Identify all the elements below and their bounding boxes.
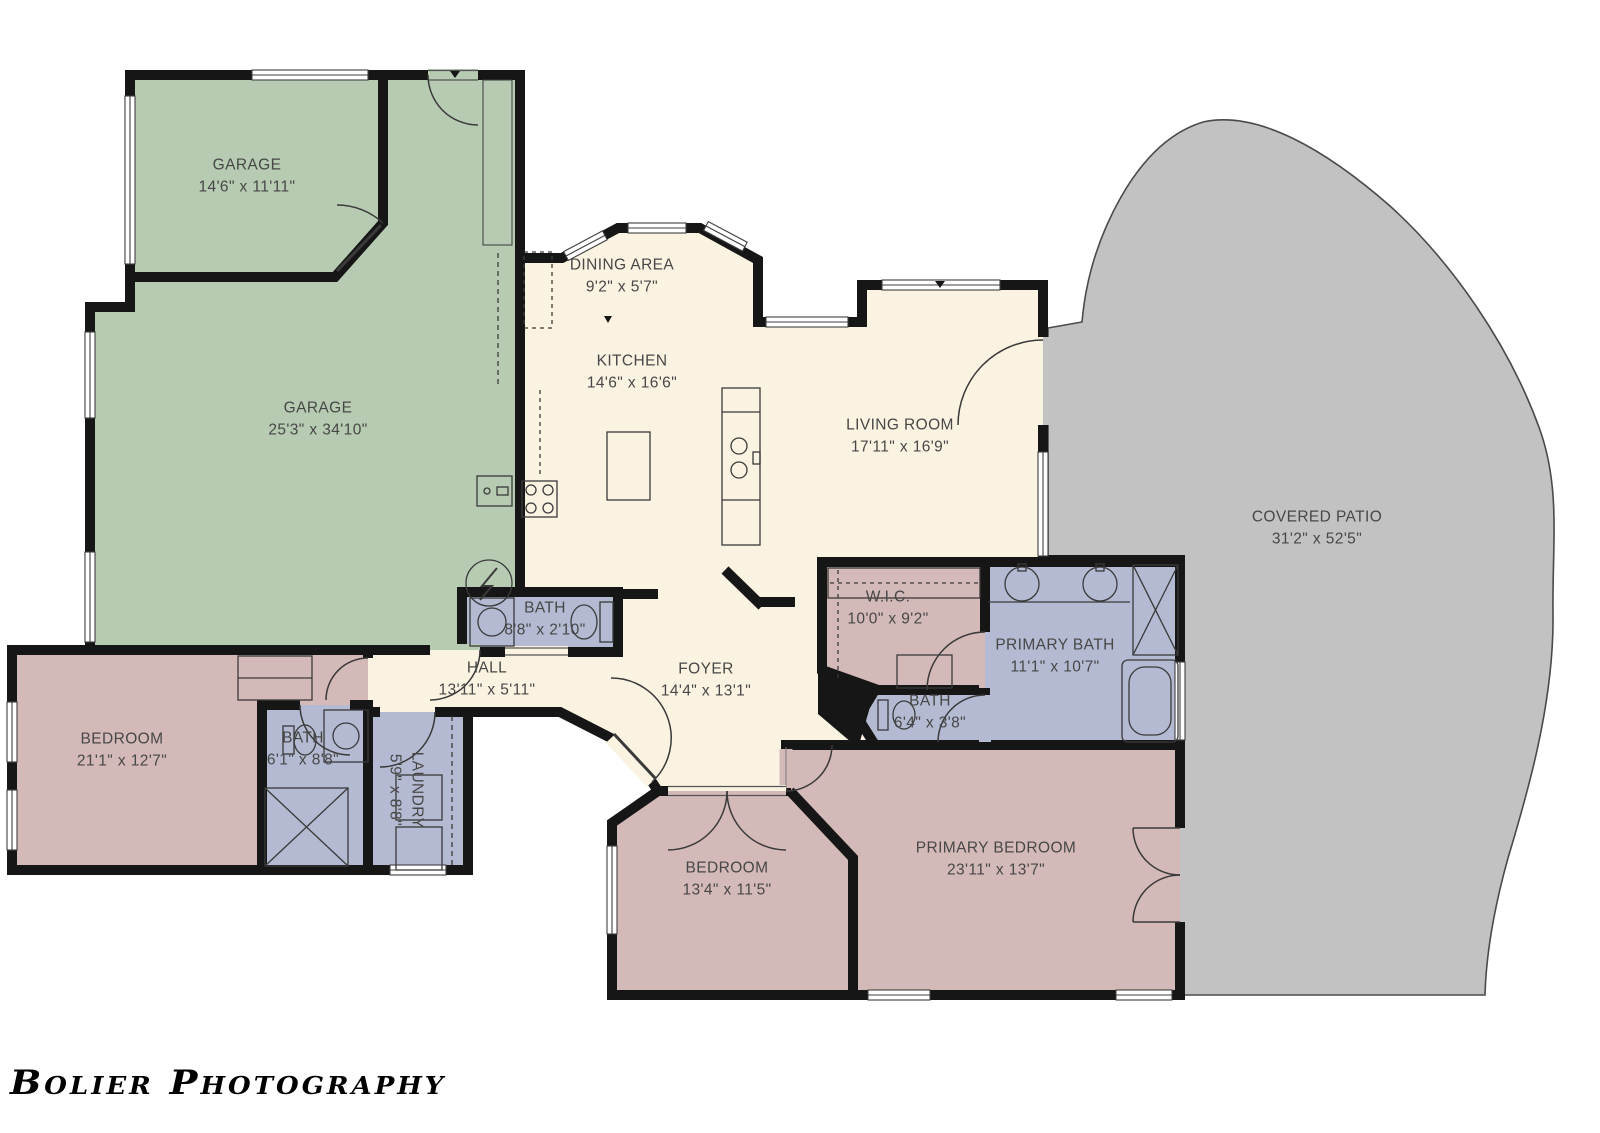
window	[125, 96, 135, 264]
room-label-bath-left: BATH 6'1" x 8'8"	[267, 728, 339, 773]
window	[7, 702, 17, 762]
window	[252, 70, 368, 80]
room-label-kitchen: KITCHEN 14'6" x 16'6"	[587, 351, 677, 396]
room-dims: 6'1" x 8'8"	[267, 750, 339, 772]
room-dims: 17'11" x 16'9"	[846, 437, 954, 459]
room-label-foyer: FOYER 14'4" x 13'1"	[661, 659, 751, 704]
room-name: KITCHEN	[587, 351, 677, 373]
room-label-garage: GARAGE 25'3" x 34'10"	[268, 398, 367, 443]
floor-plan-page: GARAGE 14'6" x 11'11" GARAGE 25'3" x 34'…	[0, 0, 1600, 1133]
room-label-laundry: LAUNDRY 5'9" x 8'8"	[383, 752, 428, 829]
room-name: PRIMARY BATH	[995, 635, 1114, 657]
room-dims: 13'4" x 11'5"	[682, 880, 771, 902]
room-label-bath-suite: BATH 6'4" x 3'8"	[894, 691, 966, 736]
room-dims: 10'0" x 9'2"	[847, 609, 928, 631]
room-name: BEDROOM	[77, 729, 167, 751]
room-label-hall: HALL 13'11" x 5'11"	[439, 658, 536, 703]
room-label-primary-bedroom: PRIMARY BEDROOM 23'11" x 13'7"	[916, 838, 1076, 883]
room-dims: 13'11" x 5'11"	[439, 680, 536, 702]
window	[868, 990, 930, 1000]
room-label-living-room: LIVING ROOM 17'11" x 16'9"	[846, 415, 954, 460]
room-name: GARAGE	[199, 155, 296, 177]
room-label-covered-patio: COVERED PATIO 31'2" x 52'5"	[1252, 507, 1382, 552]
room-dims: 23'11" x 13'7"	[916, 860, 1076, 882]
window	[1038, 452, 1048, 556]
room-label-wic: W.I.C. 10'0" x 9'2"	[847, 587, 928, 632]
room-dims: 14'6" x 16'6"	[587, 373, 677, 395]
room-label-dining-area: DINING AREA 9'2" x 5'7"	[570, 255, 674, 300]
room-dims: 25'3" x 34'10"	[268, 420, 367, 442]
room-label-bedroom-left: BEDROOM 21'1" x 12'7"	[77, 729, 167, 774]
room-name: LAUNDRY	[405, 752, 427, 829]
room-name: BATH	[504, 598, 585, 620]
room-name: BATH	[267, 728, 339, 750]
watermark: Bolier Photography	[10, 1062, 446, 1102]
room-dims: 21'1" x 12'7"	[77, 751, 167, 773]
room-dims: 14'6" x 11'11"	[199, 177, 296, 199]
window	[7, 790, 17, 850]
window	[1116, 990, 1172, 1000]
window	[766, 317, 848, 327]
room-dims: 31'2" x 52'5"	[1252, 529, 1382, 551]
room-name: HALL	[439, 658, 536, 680]
room-dims: 11'1" x 10'7"	[995, 657, 1114, 679]
window	[607, 846, 617, 934]
window	[628, 223, 686, 233]
room-dims: 6'4" x 3'8"	[894, 713, 966, 735]
room-dims: 9'2" x 5'7"	[570, 277, 674, 299]
room-name: DINING AREA	[570, 255, 674, 277]
room-label-bedroom-rear: BEDROOM 13'4" x 11'5"	[682, 858, 771, 903]
window	[85, 552, 95, 642]
room-name: FOYER	[661, 659, 751, 681]
room-name: BATH	[894, 691, 966, 713]
room-label-garage-small: GARAGE 14'6" x 11'11"	[199, 155, 296, 200]
window	[85, 332, 95, 418]
room-name: GARAGE	[268, 398, 367, 420]
room-name: COVERED PATIO	[1252, 507, 1382, 529]
room-name: BEDROOM	[682, 858, 771, 880]
room-dims: 5'9" x 8'8"	[383, 752, 405, 829]
room-name: W.I.C.	[847, 587, 928, 609]
window	[1175, 662, 1185, 740]
room-label-bath-hall: BATH 8'8" x 2'10"	[504, 598, 585, 643]
room-name: PRIMARY BEDROOM	[916, 838, 1076, 860]
room-label-primary-bath: PRIMARY BATH 11'1" x 10'7"	[995, 635, 1114, 680]
room-dims: 8'8" x 2'10"	[504, 620, 585, 642]
room-dims: 14'4" x 13'1"	[661, 681, 751, 703]
room-name: LIVING ROOM	[846, 415, 954, 437]
